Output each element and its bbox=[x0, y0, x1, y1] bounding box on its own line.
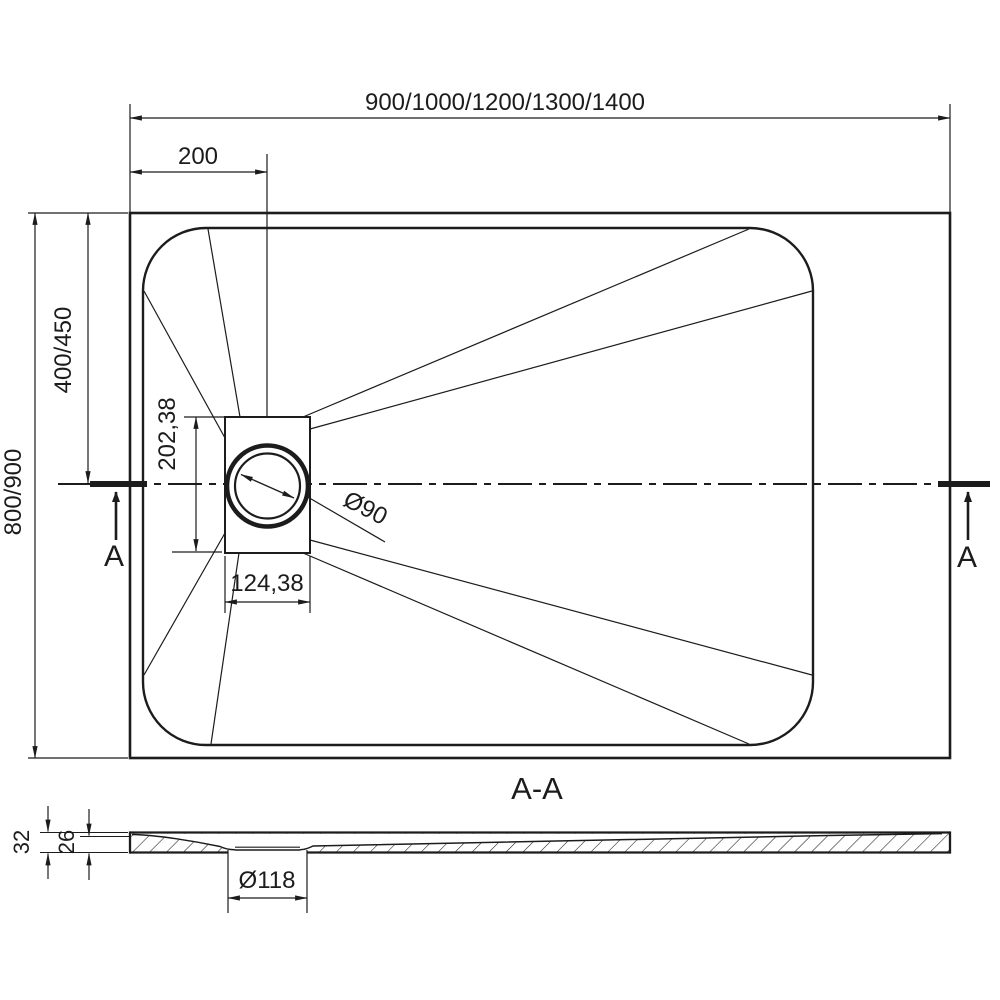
dim-text-overall-depth: 800/900 bbox=[0, 449, 27, 536]
dim-text-drain-box-width: 124,38 bbox=[230, 570, 303, 597]
dim-overall-width bbox=[130, 104, 950, 212]
drawing-svg: 900/1000/1200/1300/1400 200 800/900 400/… bbox=[0, 0, 1000, 1000]
dim-text-drain-diameter: Ø90 bbox=[339, 486, 392, 531]
dim-inner-thickness bbox=[80, 809, 130, 880]
section-marker-right-label: A bbox=[957, 541, 977, 574]
dim-text-drain-box-height: 202,38 bbox=[154, 397, 181, 470]
drain-recess-outline bbox=[225, 417, 310, 553]
dim-text-drain-offset: 200 bbox=[178, 143, 218, 170]
technical-drawing-shower-tray: 900/1000/1200/1300/1400 200 800/900 400/… bbox=[0, 0, 1000, 1000]
dim-text-inner-thickness: 26 bbox=[54, 830, 79, 854]
section-title: A-A bbox=[511, 771, 563, 806]
dim-text-half-depth: 400/450 bbox=[50, 307, 77, 394]
drain-hole-mask bbox=[229, 850, 306, 860]
dim-text-drain-hole: Ø118 bbox=[239, 867, 296, 894]
dim-text-total-thickness: 32 bbox=[9, 830, 34, 854]
dim-text-overall-width: 900/1000/1200/1300/1400 bbox=[365, 89, 645, 116]
section-marker-left-label: A bbox=[104, 540, 124, 573]
section-view bbox=[40, 806, 950, 913]
